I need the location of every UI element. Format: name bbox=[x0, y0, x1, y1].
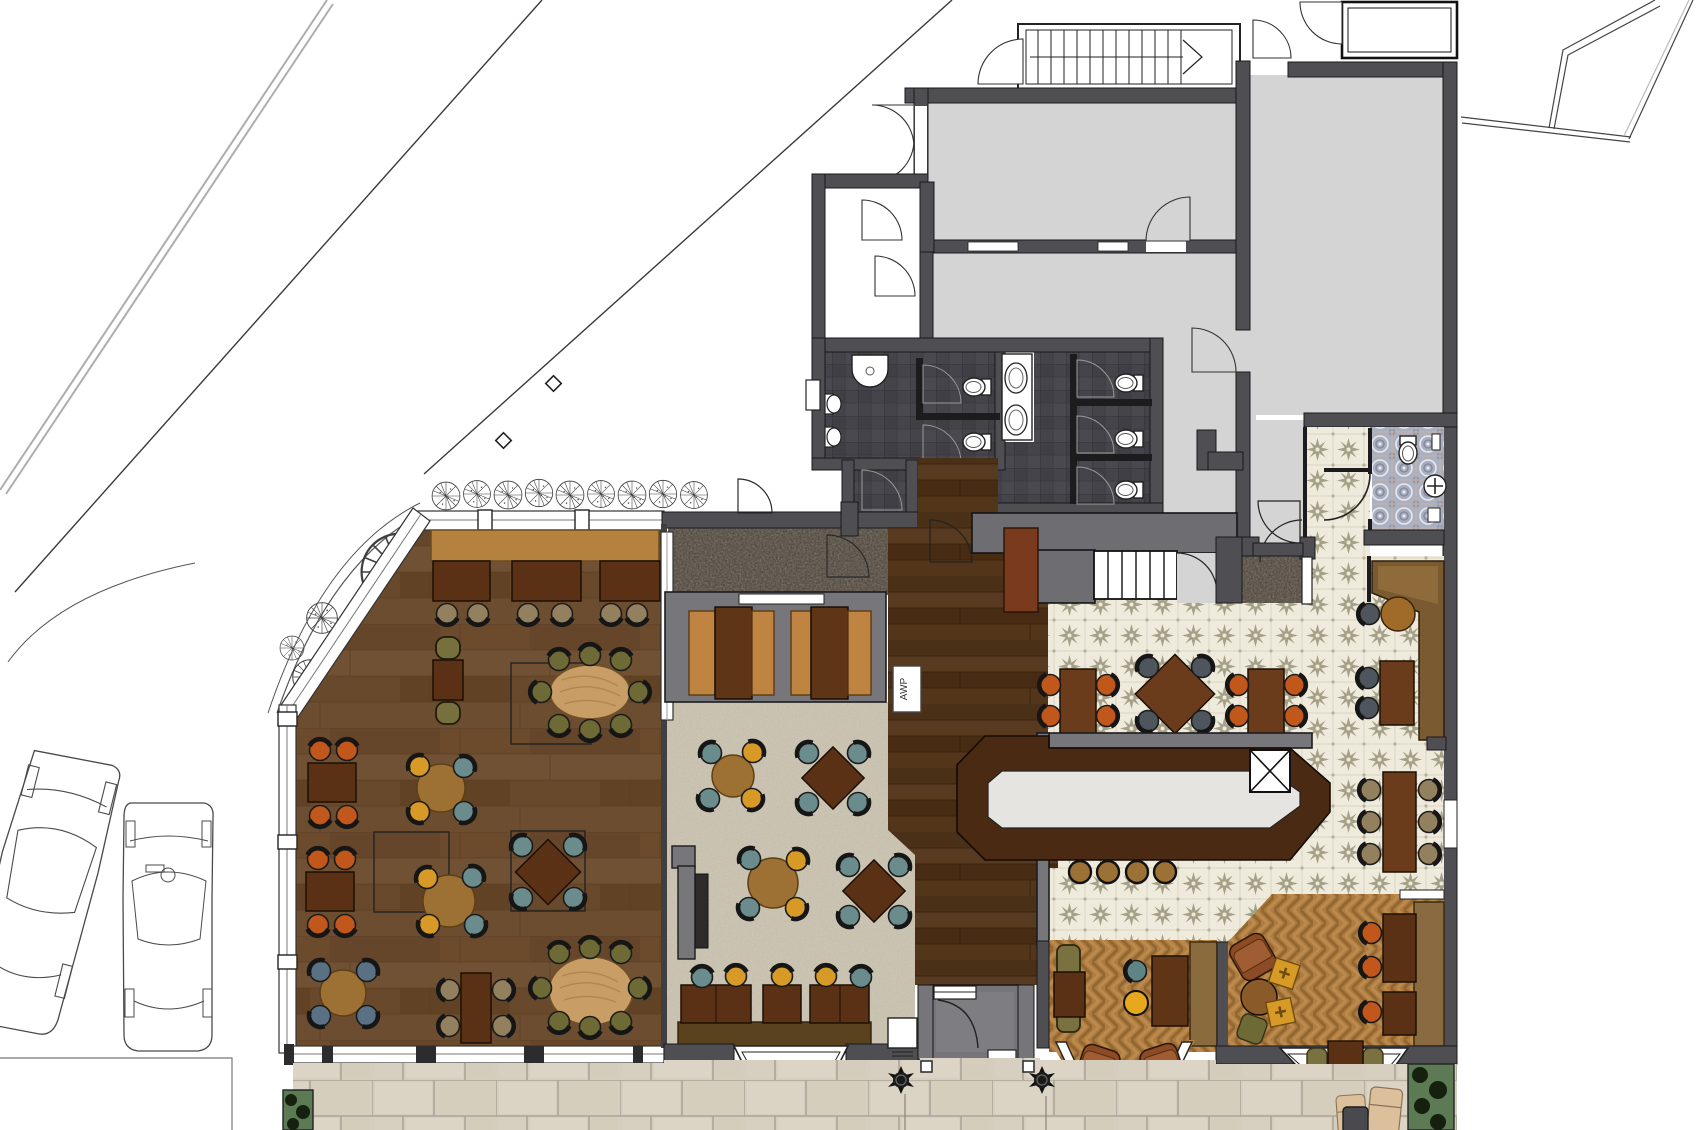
svg-text:AWP: AWP bbox=[899, 677, 910, 700]
